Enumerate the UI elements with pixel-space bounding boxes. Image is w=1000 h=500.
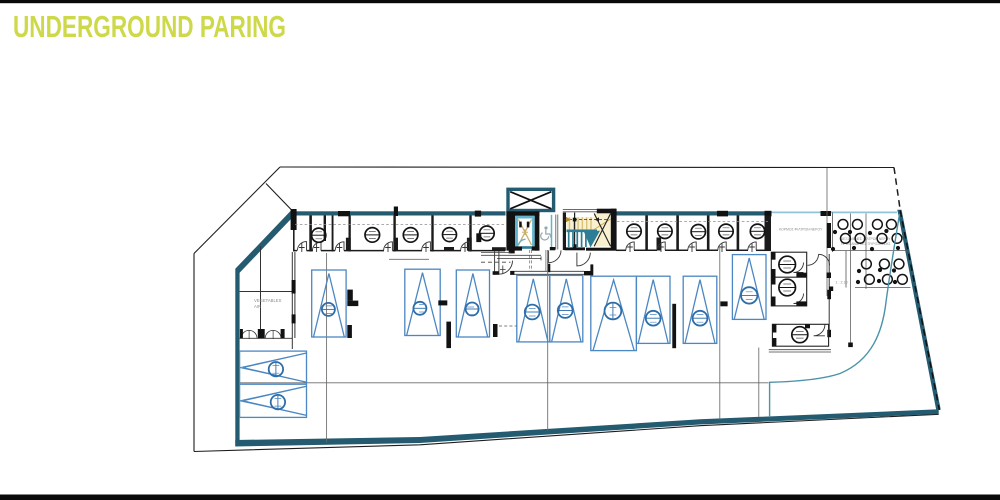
- svg-text:AIR: AIR: [254, 304, 261, 309]
- svg-text:UNDERGROUND PARING: UNDERGROUND PARING: [13, 10, 286, 44]
- svg-text:ΚΟΡΜΟΣ ΦΙΛΤΡΩΝ ΝΕΡΟΥ: ΚΟΡΜΟΣ ΦΙΛΤΡΩΝ ΝΕΡΟΥ: [779, 228, 823, 232]
- svg-text:VEGETABLES: VEGETABLES: [254, 298, 282, 303]
- svg-text:ΔΕΞΑΜΕΝΕΣ ΦΙΛΤΡΩΝ ΝΕΡΟΥ: ΔΕΞΑΜΕΝΕΣ ΦΙΛΤΡΩΝ ΝΕΡΟΥ: [841, 237, 891, 241]
